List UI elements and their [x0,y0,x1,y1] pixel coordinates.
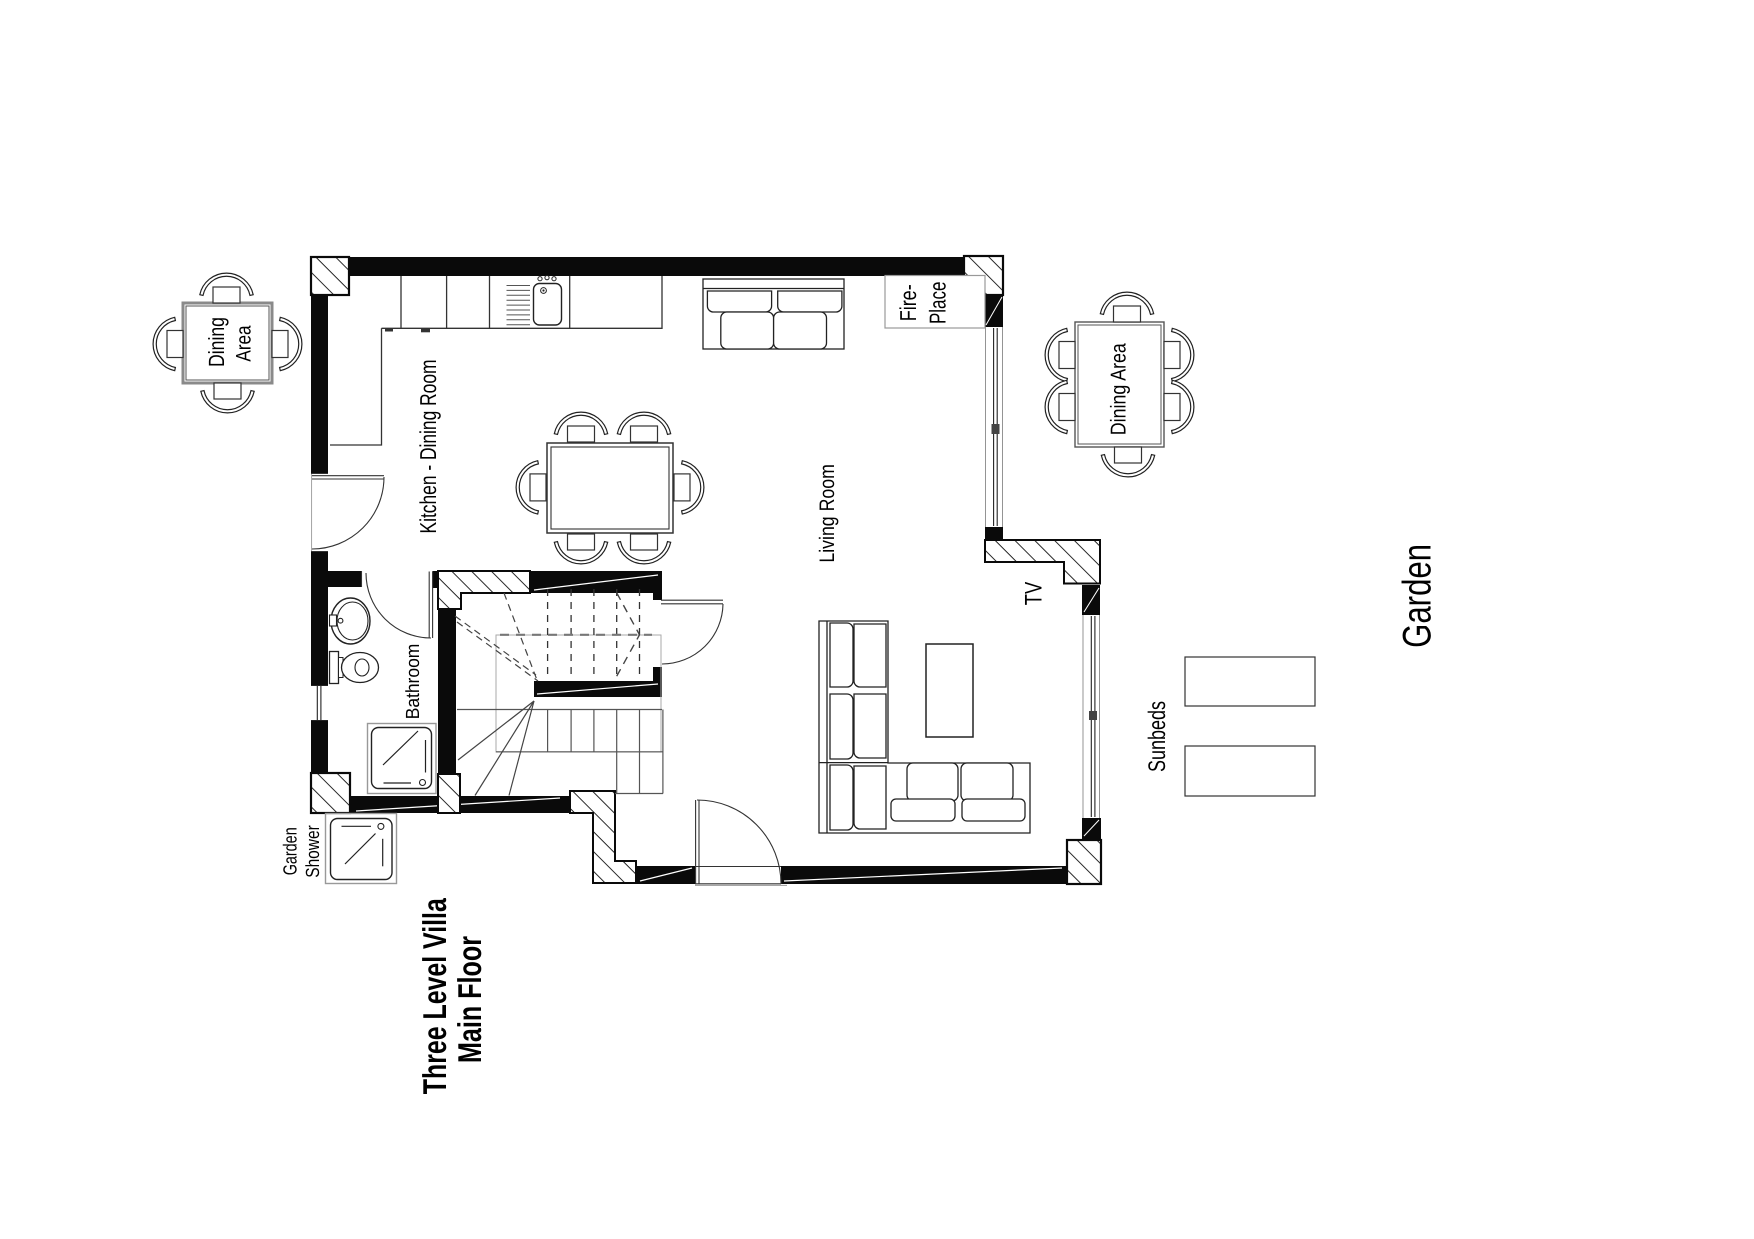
svg-text:Dining: Dining [204,317,229,367]
svg-text:Kitchen - Dining Room: Kitchen - Dining Room [415,360,441,534]
svg-text:Three Level Villa: Three Level Villa [416,898,453,1094]
svg-text:Garden: Garden [280,827,301,875]
svg-text:Bathroom: Bathroom [403,644,424,720]
svg-text:Place: Place [925,282,951,325]
svg-text:Garden: Garden [1395,544,1439,648]
svg-text:Fire-: Fire- [895,284,921,321]
svg-text:TV: TV [1020,582,1047,606]
svg-text:Living Room: Living Room [816,464,839,563]
svg-text:Sunbeds: Sunbeds [1144,701,1171,772]
svg-text:Dining Area: Dining Area [1107,343,1131,435]
svg-text:Main Floor: Main Floor [451,936,488,1063]
svg-text:Shower: Shower [303,825,324,878]
svg-text:Area: Area [233,325,256,361]
